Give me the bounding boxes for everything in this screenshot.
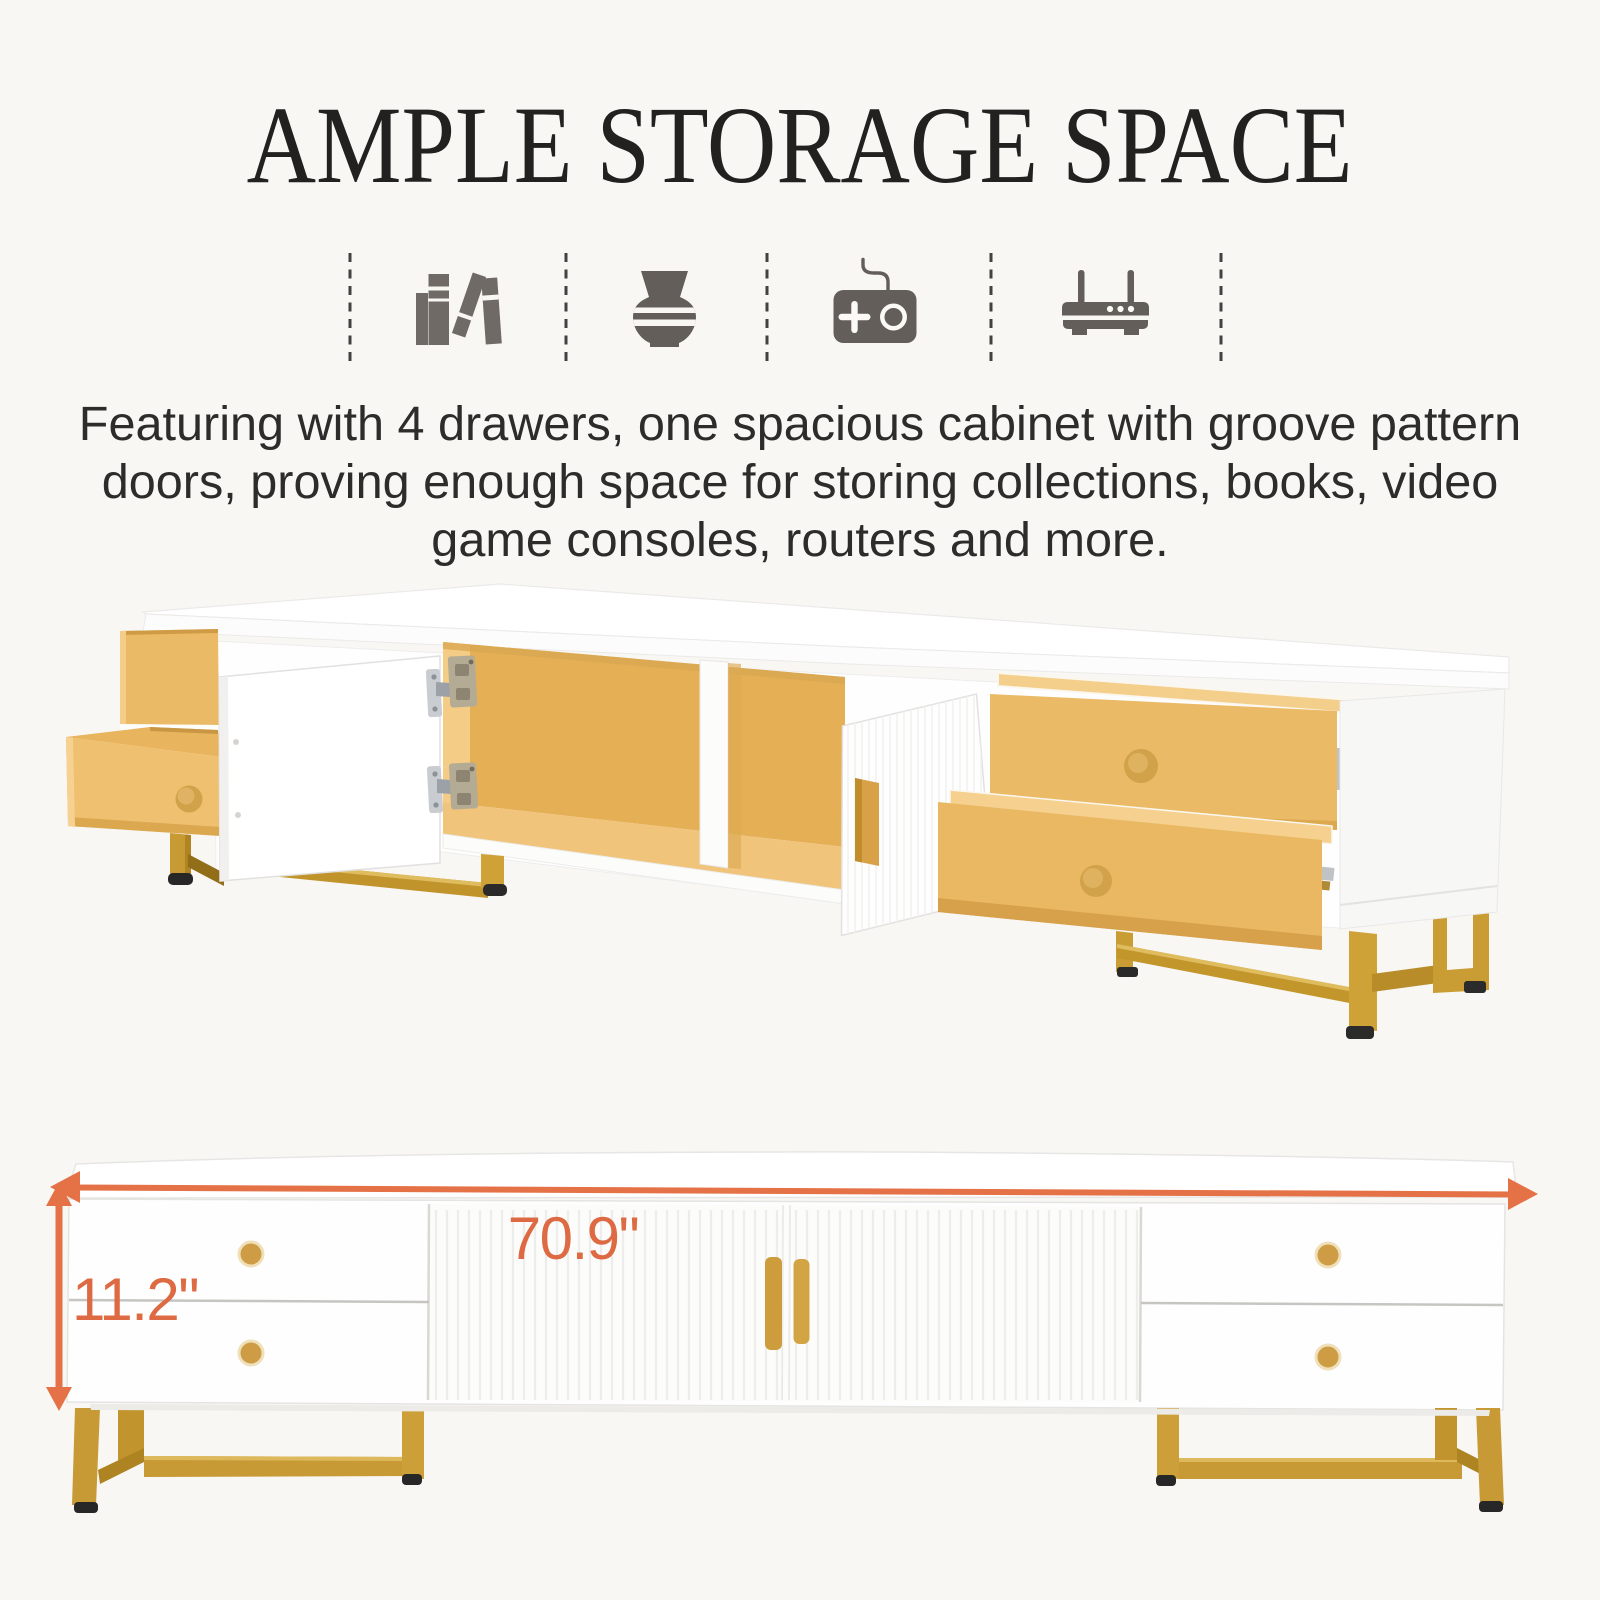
svg-text:11.2": 11.2"	[72, 1266, 198, 1333]
svg-text:70.9": 70.9"	[508, 1205, 639, 1272]
